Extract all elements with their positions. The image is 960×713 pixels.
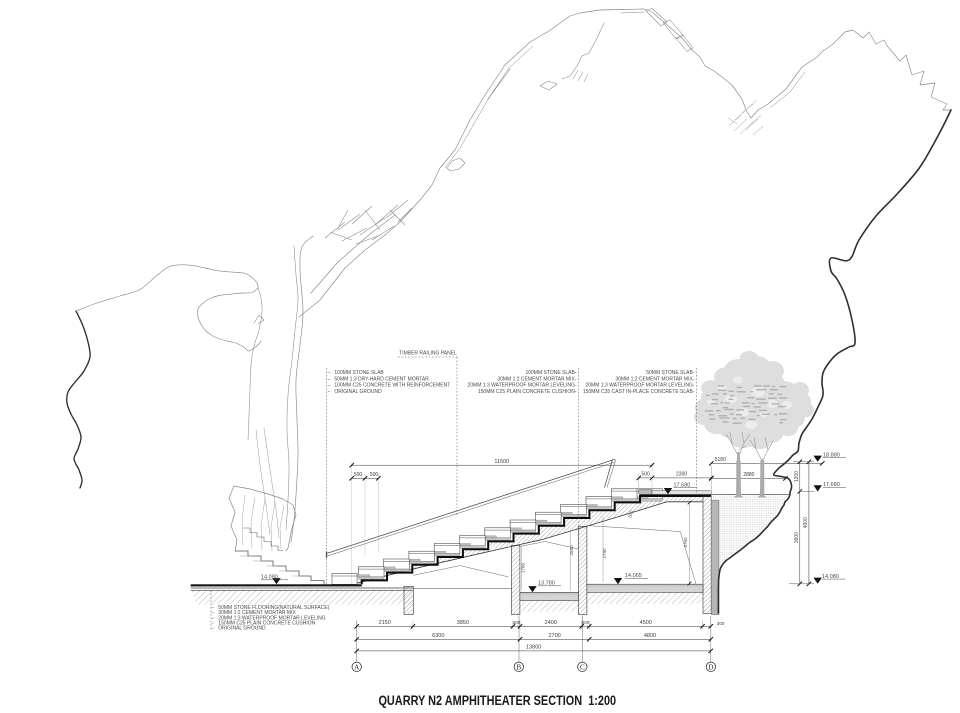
svg-text:4800: 4800 bbox=[803, 517, 809, 528]
svg-text:ORIGINAL GROUND: ORIGINAL GROUND bbox=[334, 389, 382, 395]
svg-text:A: A bbox=[354, 663, 359, 671]
svg-text:150MM C25 PLAIN CONCRETE CUSHI: 150MM C25 PLAIN CONCRETE CUSHION- bbox=[478, 389, 577, 395]
svg-text:300: 300 bbox=[582, 620, 590, 625]
svg-text:3600: 3600 bbox=[794, 532, 800, 543]
svg-text:2700: 2700 bbox=[548, 633, 560, 639]
svg-text:100MM STONE SLAB: 100MM STONE SLAB bbox=[334, 370, 384, 376]
svg-text:30MM 1:2 CEMENT MORTAR MIX-: 30MM 1:2 CEMENT MORTAR MIX- bbox=[615, 376, 695, 382]
svg-text:100MM C25 CONCRETE WITH REINFO: 100MM C25 CONCRETE WITH REINFORCEMENT bbox=[334, 383, 450, 389]
svg-text:100MM STONE SLAB-: 100MM STONE SLAB- bbox=[525, 370, 576, 376]
svg-text:ORIGINAL GROUND: ORIGINAL GROUND bbox=[218, 626, 266, 632]
svg-text:TIMBER RAILING PANEL: TIMBER RAILING PANEL bbox=[399, 351, 457, 357]
svg-text:1780: 1780 bbox=[521, 562, 526, 573]
svg-text:--: -- bbox=[328, 370, 332, 376]
svg-text:2500: 2500 bbox=[569, 545, 574, 556]
svg-text:2150: 2150 bbox=[379, 620, 391, 626]
svg-text:-·: -· bbox=[212, 626, 216, 632]
svg-text:2400: 2400 bbox=[545, 620, 557, 626]
svg-text:2880: 2880 bbox=[743, 472, 754, 478]
svg-text:B: B bbox=[516, 663, 521, 671]
svg-text:20MM 1:3 WATERPROOF MORTAR LEV: 20MM 1:3 WATERPROOF MORTAR LEVELING- bbox=[468, 383, 577, 389]
svg-text:30MM 1:2 CEMENT MORTAR MIX-: 30MM 1:2 CEMENT MORTAR MIX- bbox=[497, 376, 577, 382]
svg-text:20MM 1:3 WATERPROOF MORTAR LEV: 20MM 1:3 WATERPROOF MORTAR LEVELING- bbox=[586, 383, 695, 389]
svg-text:D: D bbox=[708, 663, 713, 671]
svg-text:1200: 1200 bbox=[794, 471, 800, 482]
svg-text:--: -- bbox=[328, 376, 332, 382]
svg-text:50MM STONE SLAB-: 50MM STONE SLAB- bbox=[646, 370, 695, 376]
svg-text:150MM C35 CAST IN-PLACE CONCRE: 150MM C35 CAST IN-PLACE CONCRETE SLAB- bbox=[583, 389, 695, 395]
svg-text:QUARRY N2 AMPHITHEATER SECTION: QUARRY N2 AMPHITHEATER SECTION 1:200 bbox=[378, 693, 616, 709]
svg-text:300: 300 bbox=[717, 621, 725, 626]
svg-text:4500: 4500 bbox=[640, 620, 652, 626]
svg-text:500: 500 bbox=[641, 472, 650, 478]
svg-text:3750: 3750 bbox=[683, 537, 688, 548]
svg-text:2300: 2300 bbox=[676, 472, 687, 478]
svg-text:2790: 2790 bbox=[602, 548, 607, 559]
svg-text:C: C bbox=[580, 663, 585, 671]
svg-text:4800: 4800 bbox=[644, 633, 656, 639]
svg-text:6300: 6300 bbox=[432, 633, 444, 639]
svg-text:50MM 1:3 DRY-HARD CEMENT MORTA: 50MM 1:3 DRY-HARD CEMENT MORTAR bbox=[334, 376, 429, 382]
svg-text:3850: 3850 bbox=[457, 620, 469, 626]
svg-text:13800: 13800 bbox=[526, 645, 541, 651]
svg-text:500: 500 bbox=[354, 472, 363, 478]
svg-text:11500: 11500 bbox=[494, 459, 509, 465]
svg-text:5180: 5180 bbox=[715, 457, 726, 463]
svg-text:--: -- bbox=[328, 383, 332, 389]
svg-text:300: 300 bbox=[513, 620, 521, 625]
svg-text:500: 500 bbox=[370, 472, 379, 478]
svg-text:--: -- bbox=[328, 389, 332, 395]
